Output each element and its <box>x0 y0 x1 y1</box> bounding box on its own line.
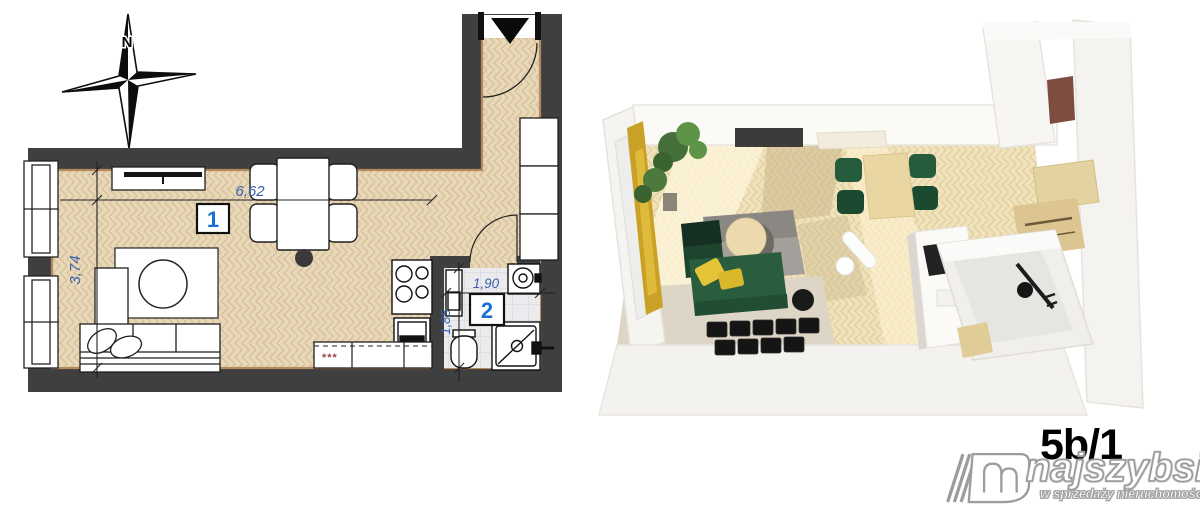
dim-label-662: 6,62 <box>235 183 265 200</box>
washbasin <box>508 264 541 294</box>
brand-book-icon <box>940 448 1032 512</box>
render-shelf <box>817 131 887 149</box>
dim-label-374: 3,74 <box>67 255 84 284</box>
render-bottom-wall <box>599 345 1087 415</box>
render-tv <box>735 128 803 147</box>
bathroom-wall-left <box>444 256 470 268</box>
brand-name: najszybsi <box>1026 450 1200 486</box>
room-label-1: 1 <box>197 204 229 233</box>
floor-plan: N <box>0 0 580 410</box>
tv-console <box>112 167 205 190</box>
floor-lamp <box>295 249 313 267</box>
kitchen-stove <box>392 260 432 314</box>
hob-marker: *** <box>322 352 338 364</box>
dim-label-190: 1,90 <box>473 276 500 291</box>
svg-text:2: 2 <box>481 298 493 323</box>
brand-text-block: najszybsi w sprzedaży nieruchomości <box>1026 450 1200 501</box>
kitchen-counter: *** <box>314 342 432 368</box>
brand-logo: najszybsi w sprzedaży nieruchomości <box>940 448 1200 512</box>
window-top <box>24 161 58 257</box>
compass-rose-icon: N <box>62 14 196 148</box>
render-hallway-doorway <box>1047 76 1075 124</box>
entrance-jamb-left <box>478 12 484 40</box>
page-canvas: N <box>0 0 1200 518</box>
toilet <box>451 330 477 368</box>
rug-coffee-table <box>115 248 218 318</box>
render-side-table <box>792 289 814 311</box>
room-label-2: 2 <box>470 294 504 325</box>
brand-tagline: w sprzedaży nieruchomości <box>1026 487 1200 501</box>
render-hallway-top-band <box>983 22 1131 40</box>
render-3d <box>585 10 1145 425</box>
window-bottom <box>24 276 58 368</box>
dim-label-185: 1,85 <box>438 309 453 335</box>
compass-north-label: N <box>122 34 133 51</box>
branding-area: 5b/1 najszybsi w sprzedaży nieruchomości <box>940 420 1200 518</box>
svg-text:1: 1 <box>207 207 219 232</box>
dining-set <box>250 158 357 250</box>
entrance-jamb-right <box>535 12 541 40</box>
render-hallway-wall-right <box>1073 20 1143 408</box>
wardrobe <box>520 118 558 260</box>
